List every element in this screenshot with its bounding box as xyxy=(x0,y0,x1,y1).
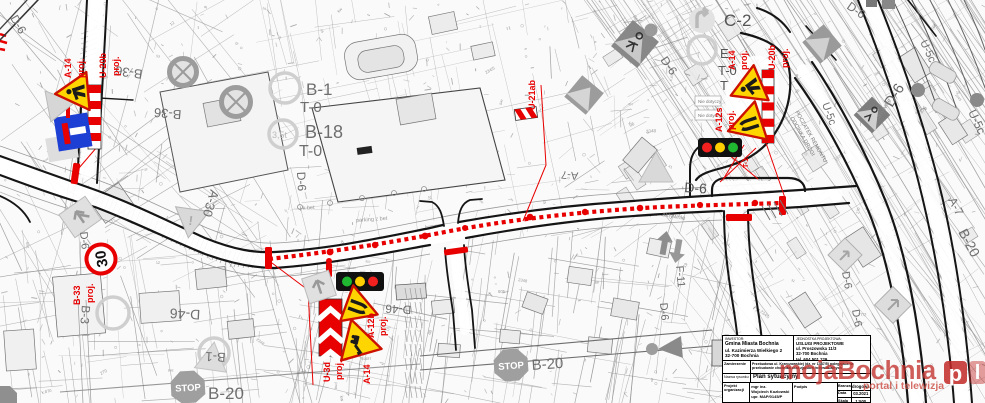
svg-text:B-36: B-36 xyxy=(153,105,182,122)
svg-text:T: T xyxy=(720,78,728,93)
svg-text:STOP: STOP xyxy=(175,382,202,394)
svg-text:D-6: D-6 xyxy=(684,179,708,197)
svg-text:12: 12 xyxy=(156,261,160,265)
svg-text:A-7: A-7 xyxy=(561,168,579,181)
svg-text:proj.: proj. xyxy=(780,49,790,69)
svg-text:A-14: A-14 xyxy=(362,364,372,384)
svg-text:B-20: B-20 xyxy=(208,384,244,403)
svg-text:proj.: proj. xyxy=(378,317,388,337)
svg-text:proj.: proj. xyxy=(111,57,121,77)
svg-text:Nie dotyczy: Nie dotyczy xyxy=(698,99,722,104)
svg-text:T-0: T-0 xyxy=(299,143,322,160)
svg-text:88: 88 xyxy=(594,280,599,285)
svg-text:proj.: proj. xyxy=(76,59,86,79)
svg-text:D-6: D-6 xyxy=(657,302,671,321)
svg-text:U-20b: U-20b xyxy=(98,52,108,78)
svg-text:30: 30 xyxy=(92,249,112,268)
svg-text:19: 19 xyxy=(956,90,961,95)
svg-text:bud: bud xyxy=(333,382,338,389)
svg-text:B-20: B-20 xyxy=(531,355,564,374)
svg-text:STOP: STOP xyxy=(498,360,525,373)
svg-text:C-2: C-2 xyxy=(724,11,751,30)
svg-text:U-3d: U-3d xyxy=(322,362,332,382)
svg-text:B-33: B-33 xyxy=(72,285,82,305)
svg-text:A-14: A-14 xyxy=(63,58,73,78)
svg-text:A-12s: A-12s xyxy=(714,107,724,132)
svg-text:proj.: proj. xyxy=(334,361,344,381)
svg-text:T-1: T-1 xyxy=(743,158,750,168)
svg-text:F-11: F-11 xyxy=(673,265,687,288)
svg-text:B-3: B-3 xyxy=(77,305,93,325)
svg-text:proj.: proj. xyxy=(726,111,736,131)
svg-text:U-21ab: U-21ab xyxy=(527,79,537,110)
svg-text:D-46: D-46 xyxy=(385,302,412,317)
svg-text:D-46: D-46 xyxy=(169,305,200,323)
svg-text:89/1: 89/1 xyxy=(25,242,30,249)
svg-text:1487: 1487 xyxy=(363,357,372,361)
svg-text:605: 605 xyxy=(498,289,506,294)
svg-text:proj.: proj. xyxy=(85,284,95,304)
svg-text:B-18: B-18 xyxy=(305,122,343,142)
svg-text:2348: 2348 xyxy=(646,128,657,134)
svg-text:U-20b: U-20b xyxy=(767,44,777,70)
svg-text:B-1: B-1 xyxy=(306,80,332,99)
svg-text:A-12b: A-12b xyxy=(366,312,376,338)
svg-text:307: 307 xyxy=(628,102,634,107)
svg-text:A-14: A-14 xyxy=(727,50,737,70)
svg-text:D-6: D-6 xyxy=(77,231,91,250)
svg-text:j k bet: j k bet xyxy=(299,205,316,212)
svg-text:T-0: T-0 xyxy=(300,99,322,116)
svg-text:B-1: B-1 xyxy=(205,349,226,365)
svg-text:D-6: D-6 xyxy=(294,171,309,191)
svg-text:proj.: proj. xyxy=(739,51,749,71)
svg-text:gaz: gaz xyxy=(168,368,174,372)
svg-text:3,5t: 3,5t xyxy=(272,130,288,140)
